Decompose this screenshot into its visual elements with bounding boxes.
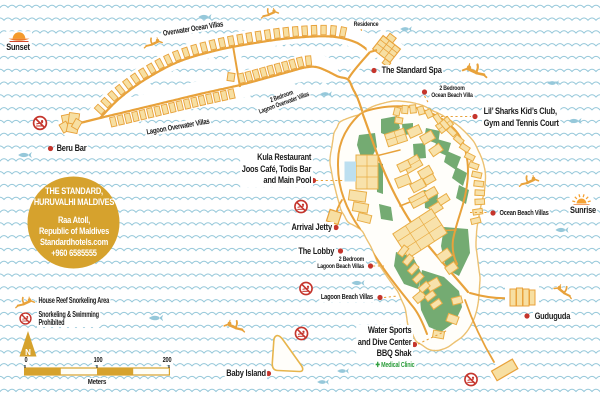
svg-text:N: N bbox=[25, 348, 31, 357]
